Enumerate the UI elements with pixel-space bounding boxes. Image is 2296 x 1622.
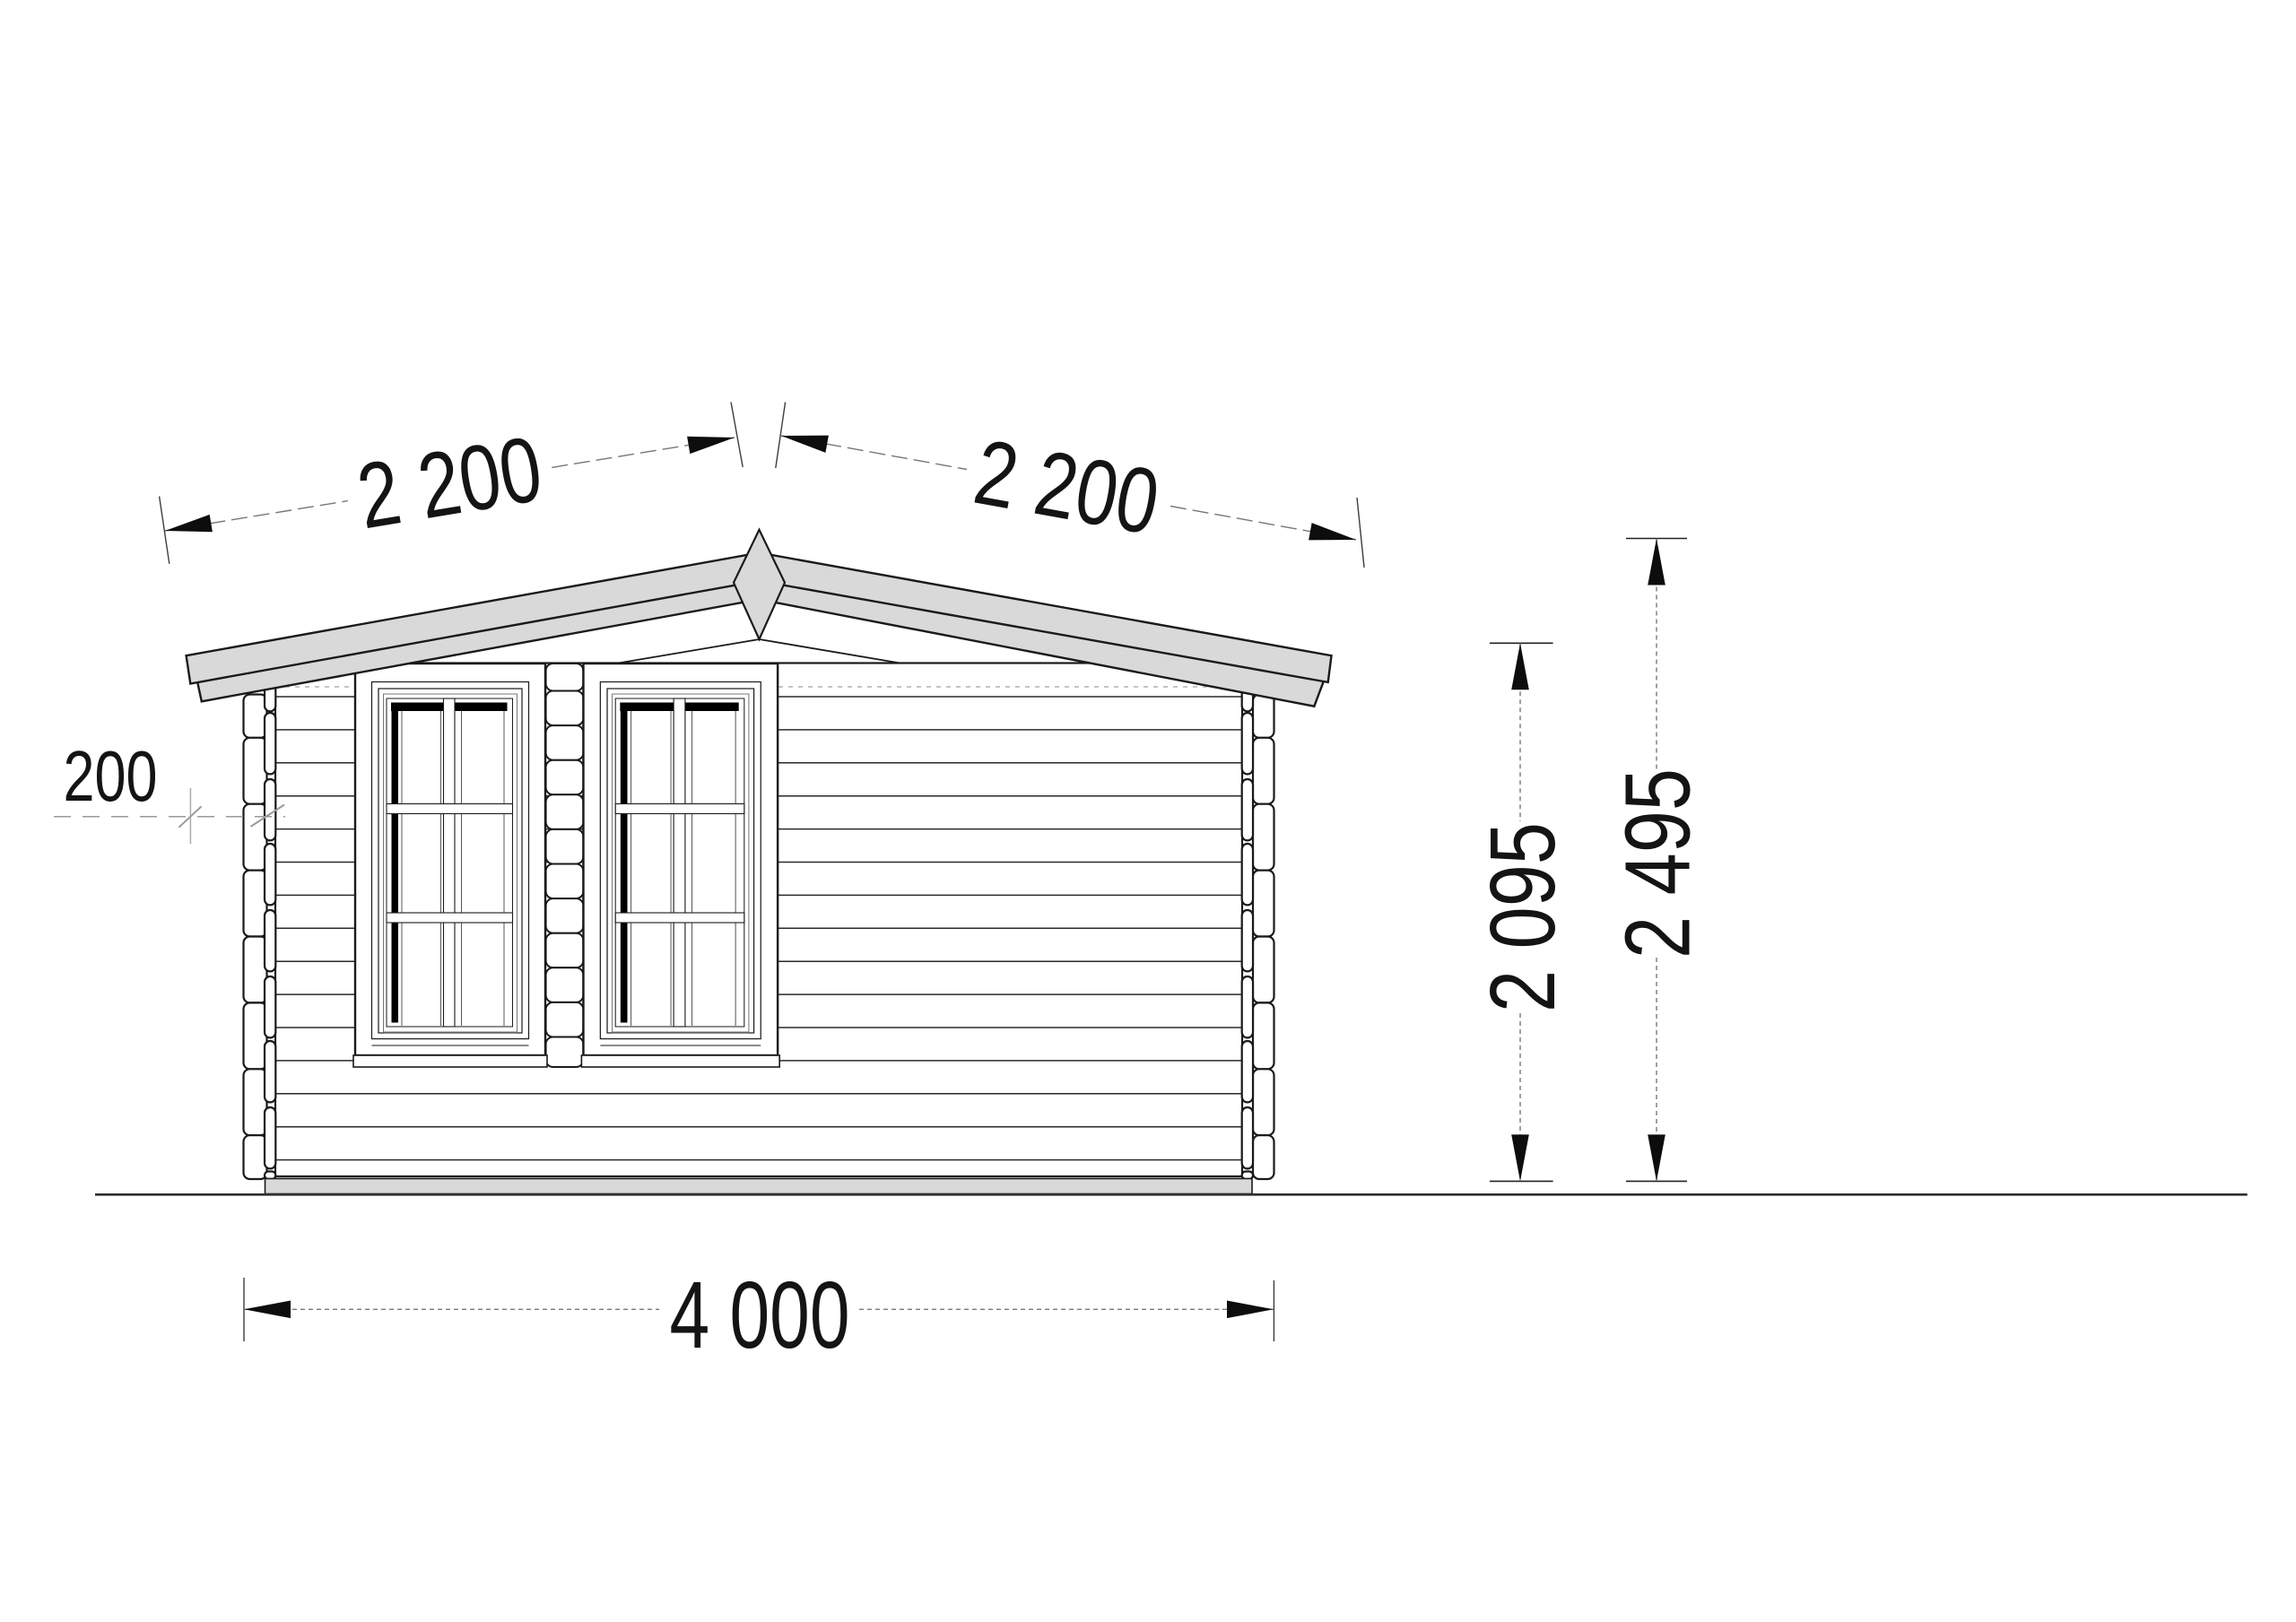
svg-text:2 095: 2 095 [1471, 822, 1574, 1012]
svg-text:2 495: 2 495 [1606, 768, 1709, 958]
svg-text:4 000: 4 000 [670, 1262, 850, 1368]
svg-text:200: 200 [64, 736, 158, 816]
